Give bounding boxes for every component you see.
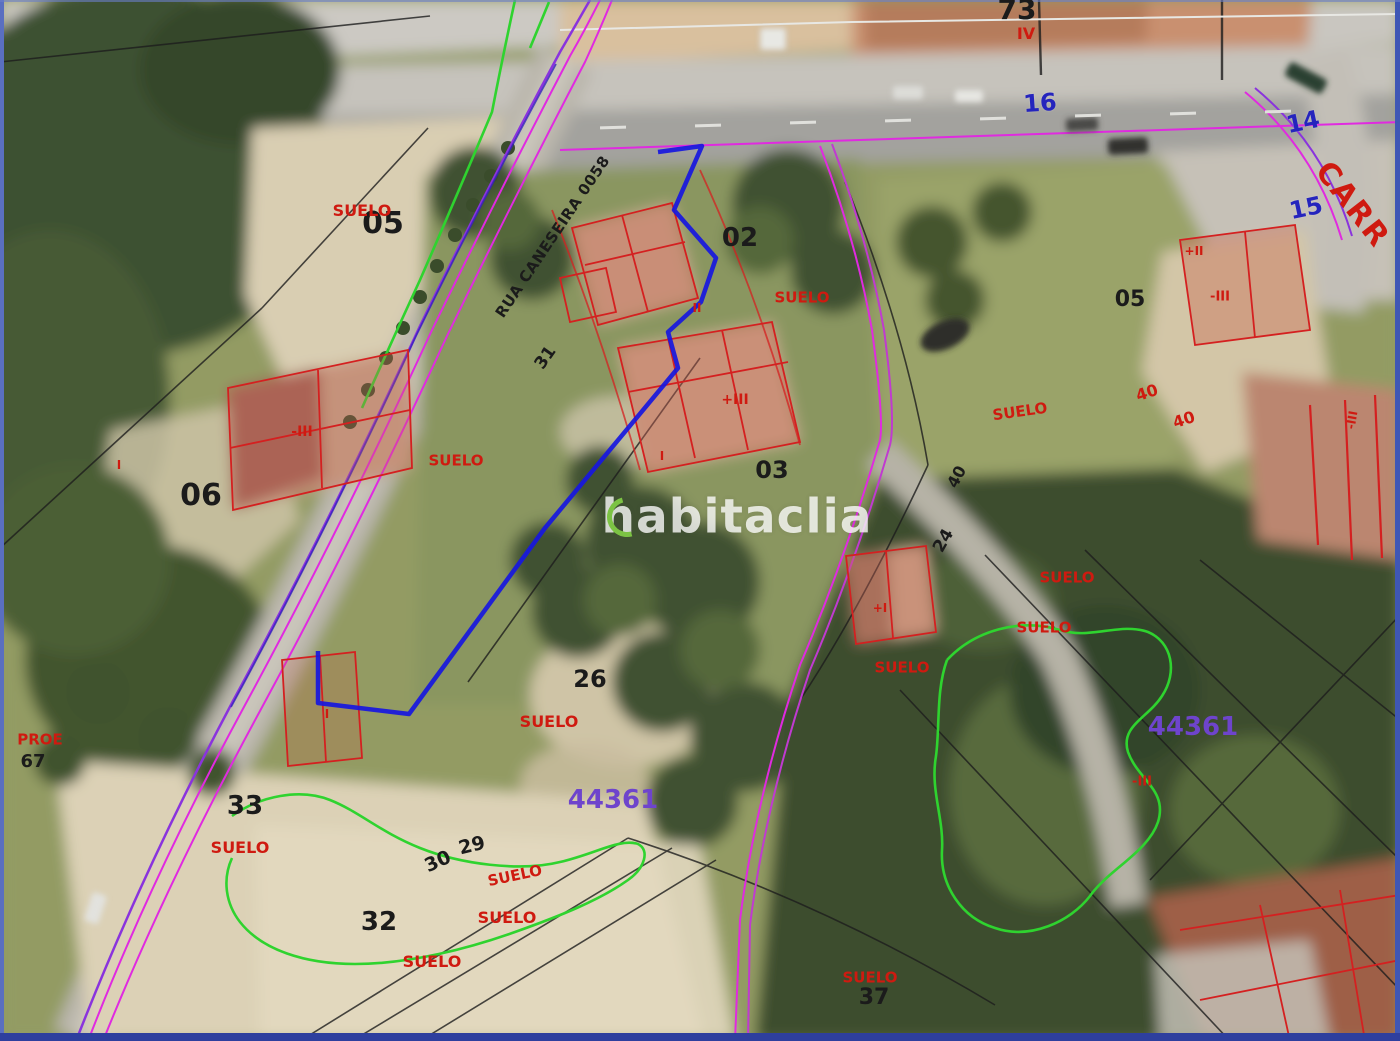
- parcel-number: 06: [180, 481, 222, 511]
- storey-label: IV: [1017, 26, 1035, 42]
- suelo-label: SUELO: [428, 454, 483, 469]
- parcel-number: 73: [998, 0, 1037, 24]
- cadastral-ref: 44361: [568, 787, 658, 813]
- suelo-label: SUELO: [874, 661, 929, 676]
- storey-label: I: [325, 708, 329, 720]
- cadastral-aerial-map: 73 05 02 31 06 03 05 40 24 26 33 29 30 3…: [0, 0, 1400, 1041]
- storey-label: -III: [1344, 410, 1359, 430]
- storey-label: I: [117, 459, 121, 471]
- storey-label: -III: [291, 425, 312, 439]
- parcel-number: 32: [361, 909, 397, 935]
- street-number: 14: [1284, 107, 1322, 137]
- suelo-label: SUELO: [478, 910, 537, 926]
- suelo-label: SUELO: [520, 714, 579, 730]
- parcel-number: 67: [20, 753, 45, 771]
- parcel-number: 03: [755, 458, 788, 482]
- suelo-label: SUELO: [774, 291, 829, 306]
- parcel-number: 05: [1115, 289, 1146, 311]
- storey-label: +III: [721, 393, 748, 407]
- suelo-label: SUELO: [1039, 571, 1094, 586]
- parcel-number: 37: [859, 987, 890, 1009]
- suelo-label: SUELO: [403, 954, 462, 970]
- suelo-label: SUELO: [842, 971, 897, 986]
- storey-label: +II: [1185, 245, 1204, 257]
- storey-label: -III: [1132, 776, 1152, 789]
- cadastral-ref: 44361: [1148, 714, 1238, 740]
- parcel-number: 33: [227, 793, 263, 819]
- street-number: 16: [1023, 90, 1058, 116]
- suelo-label: SUELO: [333, 203, 392, 219]
- parcel-number: 26: [573, 667, 606, 691]
- storey-label: I: [660, 450, 664, 462]
- parcel-number: 02: [722, 225, 758, 251]
- storey-label: -III: [1210, 291, 1230, 304]
- storey-label: II: [693, 302, 702, 314]
- suelo-label: SUELO: [1016, 621, 1071, 636]
- street-number: 15: [1287, 193, 1325, 223]
- suelo-label: SUELO: [211, 840, 270, 856]
- prop-label: PROE: [17, 733, 63, 748]
- storey-label: +I: [873, 602, 888, 614]
